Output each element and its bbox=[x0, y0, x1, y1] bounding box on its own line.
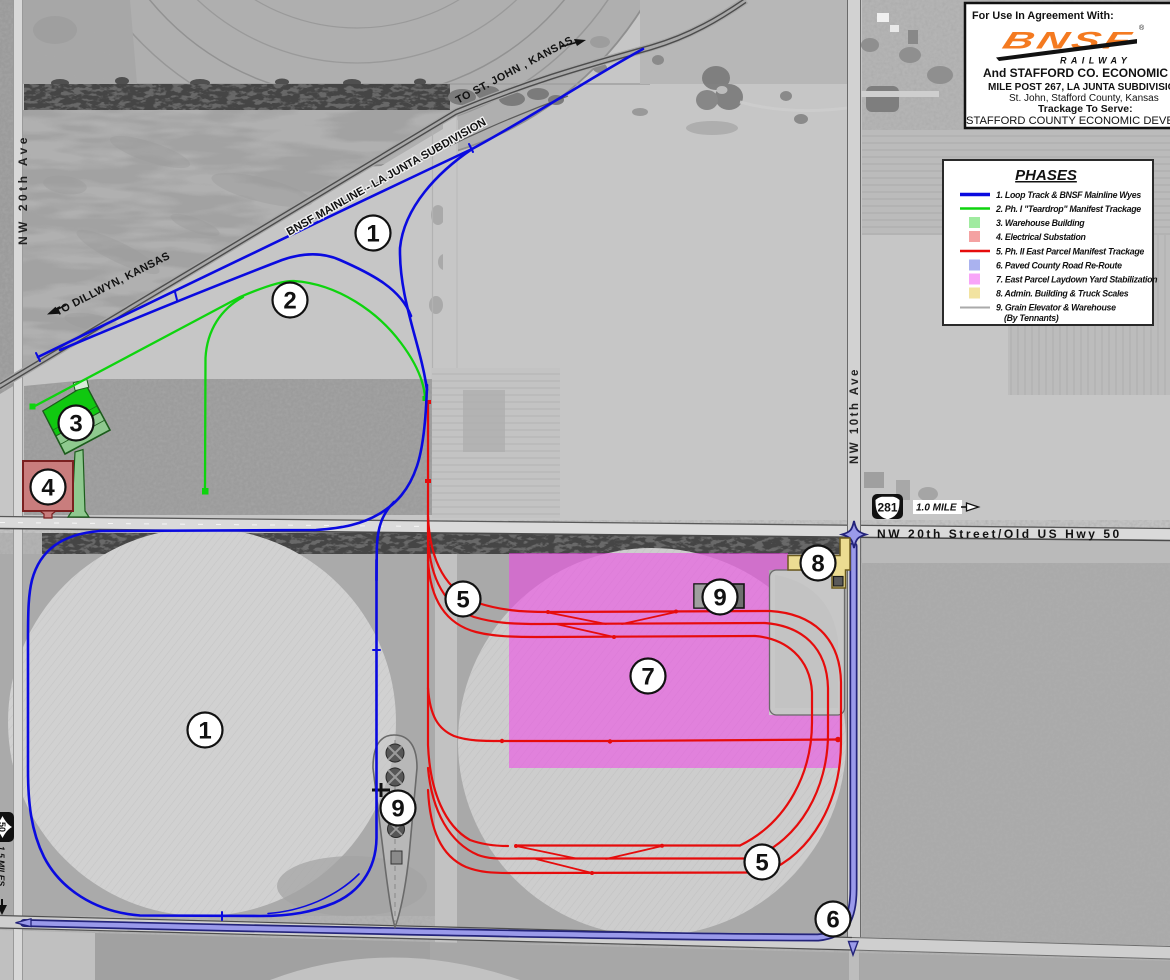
svg-text:MILE POST 267, LA JUNTA SUBDIV: MILE POST 267, LA JUNTA SUBDIVISION bbox=[988, 82, 1170, 93]
svg-text:1.5 MILES: 1.5 MILES bbox=[0, 846, 7, 886]
svg-text:3. Warehouse Building: 3. Warehouse Building bbox=[996, 218, 1085, 228]
svg-text:PHASES: PHASES bbox=[1015, 167, 1077, 184]
svg-text:281: 281 bbox=[877, 501, 897, 515]
svg-text:1: 1 bbox=[366, 221, 379, 248]
svg-text:1. Loop Track & BNSF Mainline: 1. Loop Track & BNSF Mainline Wyes bbox=[996, 190, 1141, 200]
svg-text:NW 20th Street/Old US Hwy 50: NW 20th Street/Old US Hwy 50 bbox=[877, 527, 1122, 541]
svg-text:5: 5 bbox=[456, 587, 469, 614]
svg-text:9: 9 bbox=[713, 585, 726, 612]
svg-text:NW 20th Ave: NW 20th Ave bbox=[16, 134, 30, 245]
svg-text:6: 6 bbox=[826, 907, 839, 934]
svg-text:5. Ph. II East Parcel Manifest: 5. Ph. II East Parcel Manifest Trackage bbox=[996, 247, 1144, 257]
svg-text:9. Grain Elevator & Warehouse: 9. Grain Elevator & Warehouse bbox=[996, 303, 1116, 313]
svg-text:1.0 MILE: 1.0 MILE bbox=[916, 503, 957, 514]
svg-text:For Use In Agreement With:: For Use In Agreement With: bbox=[972, 10, 1114, 22]
svg-text:7. East Parcel Laydown Yard St: 7. East Parcel Laydown Yard Stabilizatio… bbox=[996, 275, 1157, 285]
svg-text:50: 50 bbox=[0, 822, 7, 832]
svg-text:NW 10th Ave: NW 10th Ave bbox=[849, 367, 861, 464]
svg-text:7: 7 bbox=[641, 664, 654, 691]
svg-text:5: 5 bbox=[755, 850, 768, 877]
svg-text:9: 9 bbox=[391, 796, 404, 823]
svg-text:4: 4 bbox=[41, 475, 55, 502]
svg-text:1: 1 bbox=[198, 718, 211, 745]
svg-text:2: 2 bbox=[283, 288, 296, 315]
svg-text:Trackage To Serve:: Trackage To Serve: bbox=[1038, 104, 1133, 115]
svg-text:4. Electrical Substation: 4. Electrical Substation bbox=[995, 232, 1086, 242]
svg-text:8: 8 bbox=[811, 551, 824, 578]
svg-text:8. Admin. Building & Truck Sca: 8. Admin. Building & Truck Scales bbox=[996, 289, 1129, 299]
svg-text:RAILWAY: RAILWAY bbox=[1060, 56, 1131, 66]
svg-text:And STAFFORD CO. ECONOMIC DEVE: And STAFFORD CO. ECONOMIC DEVE bbox=[983, 66, 1170, 80]
svg-text:3: 3 bbox=[69, 411, 82, 438]
svg-text:St. John, Stafford County, Kan: St. John, Stafford County, Kansas bbox=[1009, 93, 1159, 104]
svg-text:STAFFORD COUNTY ECONOMIC DEVEL: STAFFORD COUNTY ECONOMIC DEVELOPM bbox=[966, 115, 1170, 127]
svg-text:(By Tennants): (By Tennants) bbox=[1004, 313, 1059, 323]
svg-text:6. Paved County Road Re-Route: 6. Paved County Road Re-Route bbox=[996, 261, 1122, 271]
svg-text:2. Ph. I "Teardrop" Manifest T: 2. Ph. I "Teardrop" Manifest Trackage bbox=[995, 204, 1141, 214]
svg-text:®: ® bbox=[1139, 24, 1145, 32]
